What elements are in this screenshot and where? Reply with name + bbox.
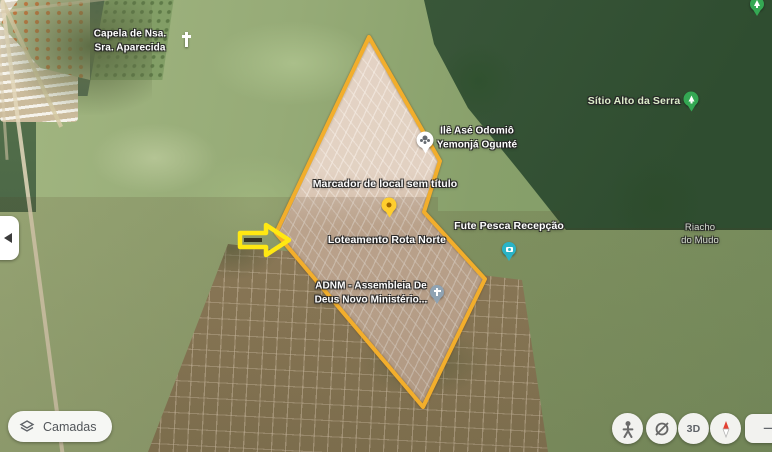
tree-icon [754,0,760,6]
marker-dot-icon [387,203,392,208]
pegman-icon [620,420,636,438]
chapel-cross-icon [185,32,188,47]
layers-icon [19,420,35,434]
3d-toggle-button[interactable]: 3D [678,413,709,444]
compass-icon [719,420,733,438]
place-pin-ile-ase[interactable] [417,132,434,149]
label-untitled-marker[interactable]: Marcador de local sem título [313,177,458,191]
temple-icon [423,136,428,141]
compass-button[interactable] [710,413,741,444]
place-pin-adnm-church[interactable] [430,285,444,299]
orbit-icon [653,420,671,438]
camera-icon [506,247,513,252]
layers-button[interactable]: Camadas [8,411,112,442]
street-view-button[interactable] [612,413,643,444]
label-adnm[interactable]: ADNM - Assembleia De Deus Novo Ministéri… [315,280,428,307]
cross-icon [436,288,439,297]
label-capela[interactable]: Capela de Nsa. Sra. Aparecida [94,28,167,55]
label-fute-pesca[interactable]: Fute Pesca Recepção [454,219,564,233]
zoom-out-button[interactable]: − [745,414,772,443]
label-ile-ase[interactable]: Ilê Asé Odomiô Yemonjá Ogunté [437,125,517,152]
collapse-panel-button[interactable] [0,216,19,260]
place-pin-sitio-alto-da-serra[interactable] [684,92,699,107]
3d-toggle-label: 3D [687,423,701,435]
place-pin-untitled-marker[interactable] [382,198,397,213]
minus-icon: − [763,419,772,439]
map-overlay-svg [0,0,772,452]
label-loteamento-rota-norte[interactable]: Loteamento Rota Norte [328,233,446,247]
label-sitio-alto-da-serra[interactable]: Sítio Alto da Serra [588,94,681,108]
map-canvas[interactable]: Capela de Nsa. Sra. Aparecida Sítio Alto… [0,0,772,452]
tree-icon [688,95,694,101]
label-riacho-do-mudo: Riacho do Mudo [681,222,719,248]
place-pin-top-edge[interactable] [750,0,764,11]
place-pin-fute-pesca[interactable] [502,242,516,256]
layers-button-label: Camadas [43,420,97,434]
chevron-left-icon [4,233,12,243]
orbit-button[interactable] [646,413,677,444]
